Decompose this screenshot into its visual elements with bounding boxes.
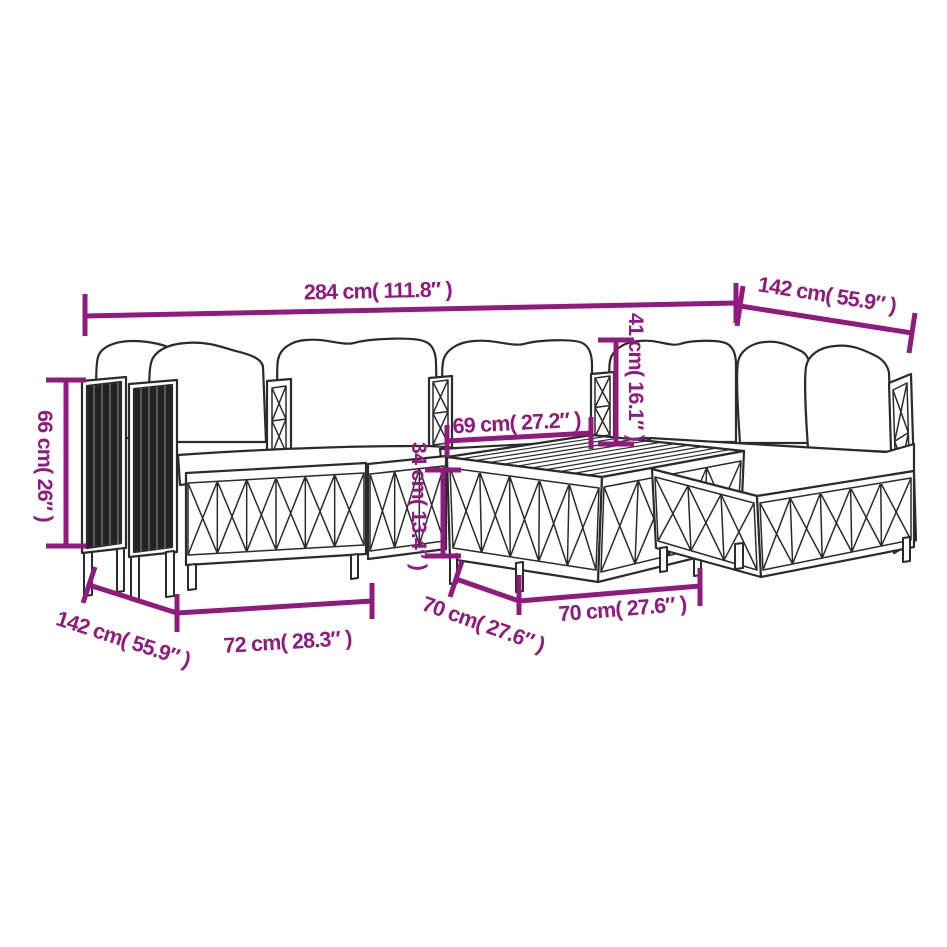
dim-label-overall-height: 66 cm( 26″ )	[33, 410, 57, 522]
furniture-leg	[660, 547, 667, 572]
dim-label-overall-width: 284 cm( 111.8″ )	[304, 277, 453, 304]
dimension-diagram-svg: 284 cm( 111.8″ ) 142 cm( 55.9″ ) 66 cm( …	[0, 0, 947, 947]
dim-seat-width: 72 cm( 28.3″ )	[177, 583, 372, 658]
furniture-leg	[117, 548, 124, 592]
furniture-line-art	[82, 339, 916, 600]
dim-line	[456, 579, 519, 601]
left-corner-chairs	[82, 377, 177, 600]
back-pillow	[805, 346, 892, 452]
furniture-leg	[131, 556, 139, 600]
chair-back-weave	[134, 385, 172, 552]
dim-line	[177, 601, 372, 613]
furniture-leg	[351, 554, 358, 579]
back-pillow	[277, 339, 438, 450]
left-sofa-base	[186, 463, 366, 590]
dim-label-table-height: 34 cm( 13.4″ )	[407, 442, 431, 571]
furniture-leg	[166, 551, 174, 597]
dim-overall-depth: 142 cm( 55.9″ )	[737, 272, 915, 353]
dimension-diagram: 284 cm( 111.8″ ) 142 cm( 55.9″ ) 66 cm( …	[0, 0, 947, 947]
dim-label-left-section-depth: 142 cm( 55.9″ )	[53, 606, 194, 672]
furniture-leg	[903, 537, 910, 562]
dim-tick	[909, 313, 915, 353]
dim-overall-height: 66 cm( 26″ )	[33, 380, 86, 546]
dim-label-backrest-height: 41 cm( 16.1″ )	[624, 313, 648, 442]
dim-label-seat-width: 72 cm( 28.3″ )	[223, 626, 353, 658]
furniture-leg	[188, 564, 196, 590]
back-pillow	[737, 342, 812, 443]
furniture-leg	[735, 543, 743, 569]
chair-back-weave	[87, 382, 121, 548]
dim-table-depth: 70 cm( 27.6″ )	[419, 561, 548, 657]
